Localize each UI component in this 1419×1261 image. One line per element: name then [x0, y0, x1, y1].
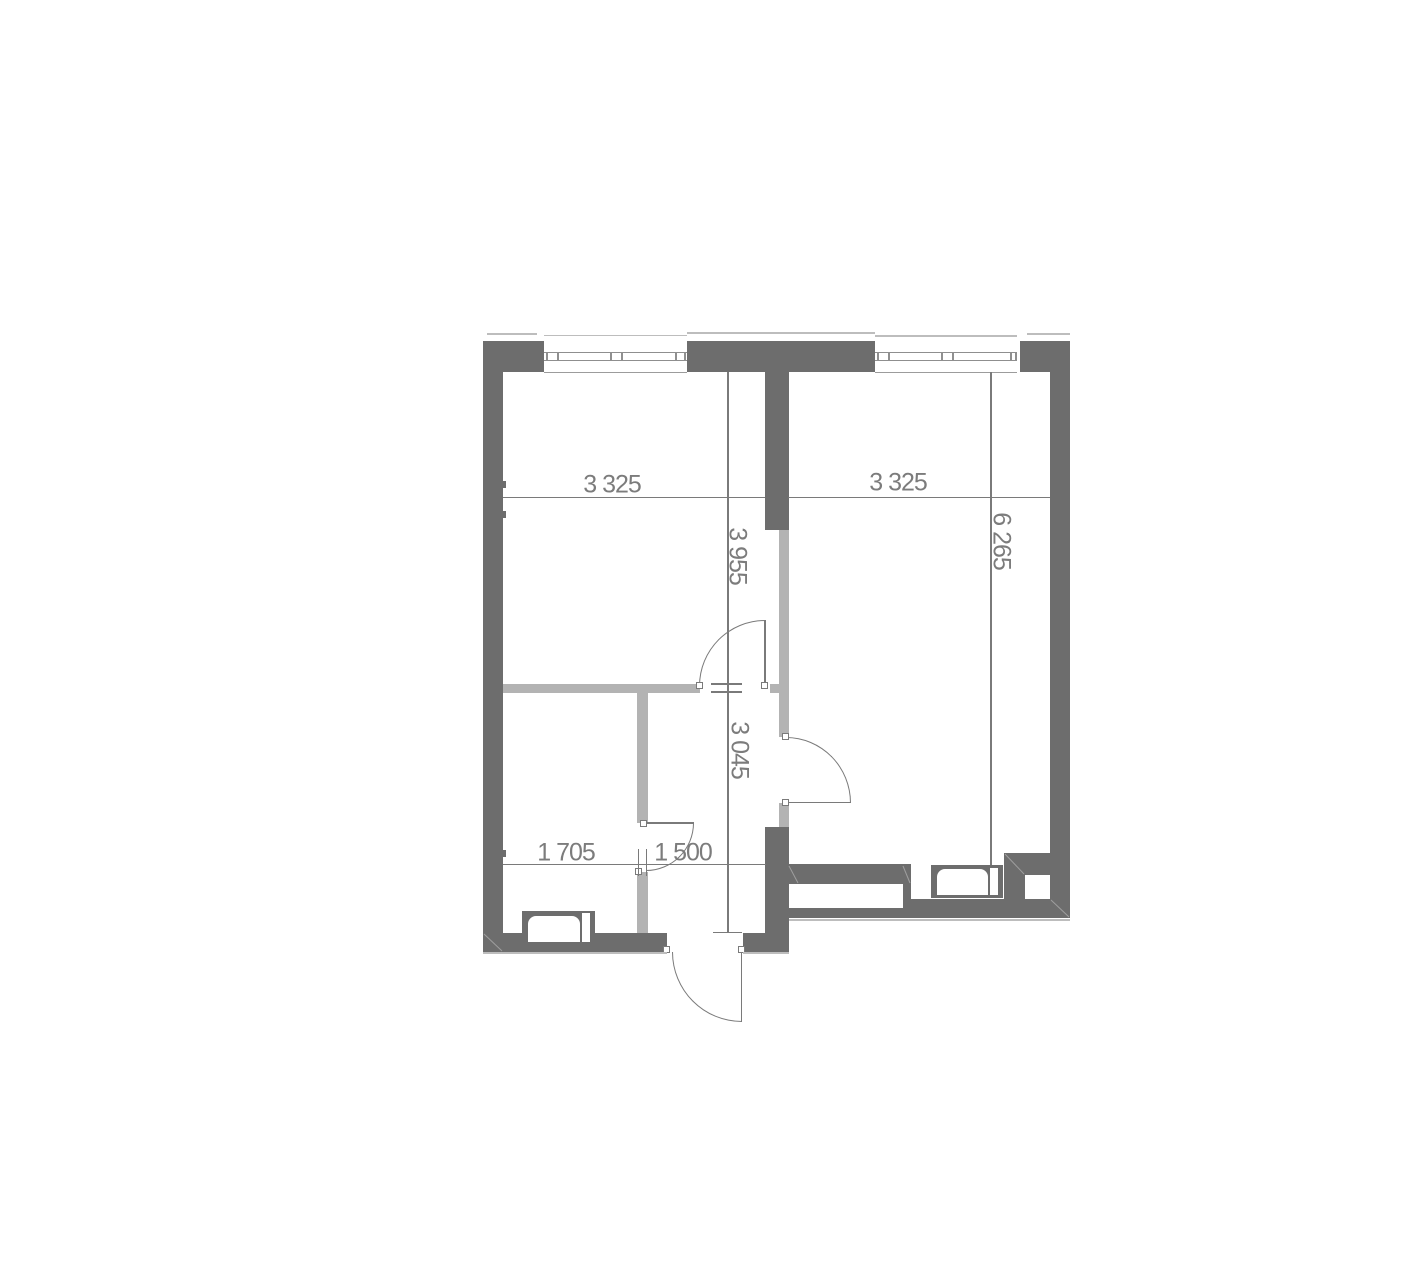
wall-joint-seams	[0, 0, 1419, 1261]
floor-plan: 3 325 3 325 3 955 6 265 3 045 1 705 1 50…	[0, 0, 1419, 1261]
